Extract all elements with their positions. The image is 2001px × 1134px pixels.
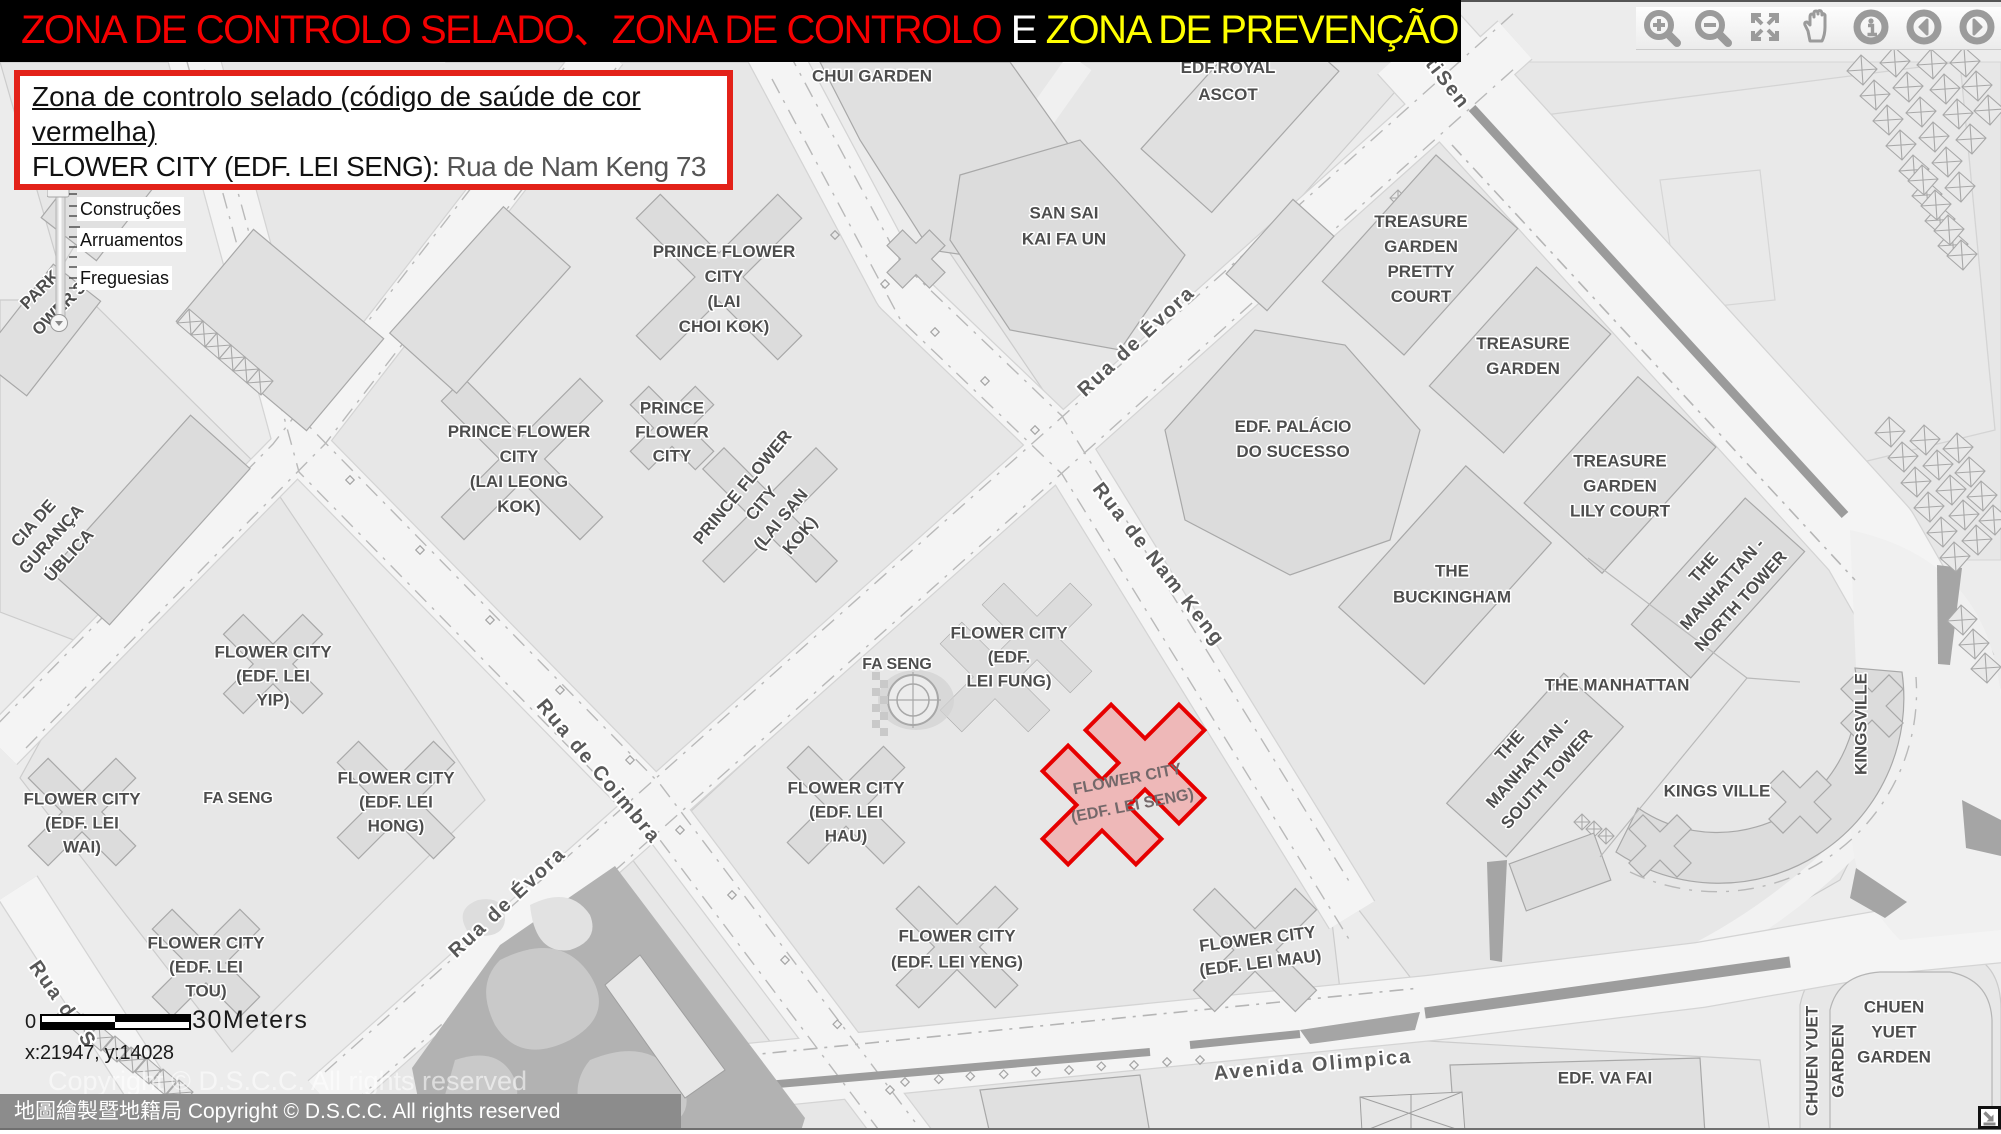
svg-text:FLOWER: FLOWER bbox=[635, 422, 709, 441]
svg-text:(EDF. LEI: (EDF. LEI bbox=[359, 792, 433, 811]
svg-text:CITY: CITY bbox=[500, 447, 539, 466]
svg-text:TREASURE: TREASURE bbox=[1374, 212, 1468, 231]
svg-text:FLOWER CITY: FLOWER CITY bbox=[337, 768, 455, 787]
svg-text:KINGSVILLE: KINGSVILLE bbox=[1851, 673, 1870, 775]
svg-text:LILY COURT: LILY COURT bbox=[1570, 501, 1671, 520]
svg-text:CHUI GARDEN: CHUI GARDEN bbox=[812, 66, 932, 85]
svg-text:HONG): HONG) bbox=[368, 816, 425, 835]
svg-text:GARDEN: GARDEN bbox=[1583, 476, 1657, 495]
svg-text:CHOI KOK): CHOI KOK) bbox=[679, 317, 770, 336]
svg-text:(EDF. LEI: (EDF. LEI bbox=[236, 666, 310, 685]
svg-text:TREASURE: TREASURE bbox=[1573, 451, 1667, 470]
svg-text:THE MANHATTAN: THE MANHATTAN bbox=[1545, 675, 1690, 694]
svg-text:EDF. VA FAI: EDF. VA FAI bbox=[1558, 1068, 1652, 1087]
svg-text:PRINCE FLOWER: PRINCE FLOWER bbox=[653, 242, 796, 261]
svg-text:KOK): KOK) bbox=[497, 497, 540, 516]
svg-text:PRINCE: PRINCE bbox=[640, 398, 704, 417]
svg-text:KINGS VILLE: KINGS VILLE bbox=[1664, 781, 1771, 800]
svg-text:FA SENG: FA SENG bbox=[862, 656, 932, 673]
svg-text:ASCOT: ASCOT bbox=[1198, 85, 1258, 104]
svg-text:COURT: COURT bbox=[1391, 287, 1452, 306]
svg-text:FA SENG: FA SENG bbox=[203, 790, 273, 807]
svg-text:FLOWER CITY: FLOWER CITY bbox=[898, 926, 1016, 945]
svg-text:FLOWER CITY: FLOWER CITY bbox=[147, 933, 265, 952]
svg-text:FLOWER CITY: FLOWER CITY bbox=[214, 642, 332, 661]
svg-text:GARDEN: GARDEN bbox=[1857, 1047, 1931, 1066]
svg-text:PRETTY: PRETTY bbox=[1387, 262, 1455, 281]
svg-text:TREASURE: TREASURE bbox=[1476, 334, 1570, 353]
svg-text:SAN SAI: SAN SAI bbox=[1030, 203, 1099, 222]
svg-text:(EDF.: (EDF. bbox=[988, 647, 1031, 666]
svg-text:KAI FA UN: KAI FA UN bbox=[1022, 229, 1106, 248]
svg-text:GARDEN: GARDEN bbox=[1384, 237, 1458, 256]
svg-text:CITY: CITY bbox=[705, 267, 744, 286]
svg-text:TOU): TOU) bbox=[185, 981, 226, 1000]
svg-text:GARDEN: GARDEN bbox=[1828, 1024, 1847, 1098]
svg-text:(EDF. LEI YENG): (EDF. LEI YENG) bbox=[891, 952, 1023, 971]
svg-text:FLOWER CITY: FLOWER CITY bbox=[950, 623, 1068, 642]
svg-text:YUET: YUET bbox=[1871, 1022, 1917, 1041]
svg-text:WAI): WAI) bbox=[63, 837, 101, 856]
svg-text:(EDF. LEI: (EDF. LEI bbox=[45, 813, 119, 832]
svg-text:FLOWER CITY: FLOWER CITY bbox=[23, 789, 141, 808]
svg-text:CHUEN YUET: CHUEN YUET bbox=[1802, 1005, 1821, 1116]
svg-text:DO SUCESSO: DO SUCESSO bbox=[1236, 442, 1349, 461]
svg-text:(EDF. LEI: (EDF. LEI bbox=[169, 957, 243, 976]
svg-text:PRINCE FLOWER: PRINCE FLOWER bbox=[448, 422, 591, 441]
svg-text:CHUEN: CHUEN bbox=[1864, 997, 1924, 1016]
svg-text:THE: THE bbox=[1435, 561, 1469, 580]
svg-text:FLOWER CITY: FLOWER CITY bbox=[787, 778, 905, 797]
svg-text:YIP): YIP) bbox=[256, 690, 289, 709]
svg-text:GARDEN: GARDEN bbox=[1486, 359, 1560, 378]
svg-text:EDF. PALÁCIO: EDF. PALÁCIO bbox=[1235, 417, 1352, 436]
svg-text:CITY: CITY bbox=[653, 446, 692, 465]
svg-text:(LAI: (LAI bbox=[707, 292, 740, 311]
svg-text:HAU): HAU) bbox=[825, 826, 868, 845]
svg-text:BUCKINGHAM: BUCKINGHAM bbox=[1393, 587, 1511, 606]
svg-text:(LAI LEONG: (LAI LEONG bbox=[470, 472, 568, 491]
svg-text:LEI FUNG): LEI FUNG) bbox=[967, 671, 1052, 690]
svg-text:(EDF. LEI: (EDF. LEI bbox=[809, 802, 883, 821]
